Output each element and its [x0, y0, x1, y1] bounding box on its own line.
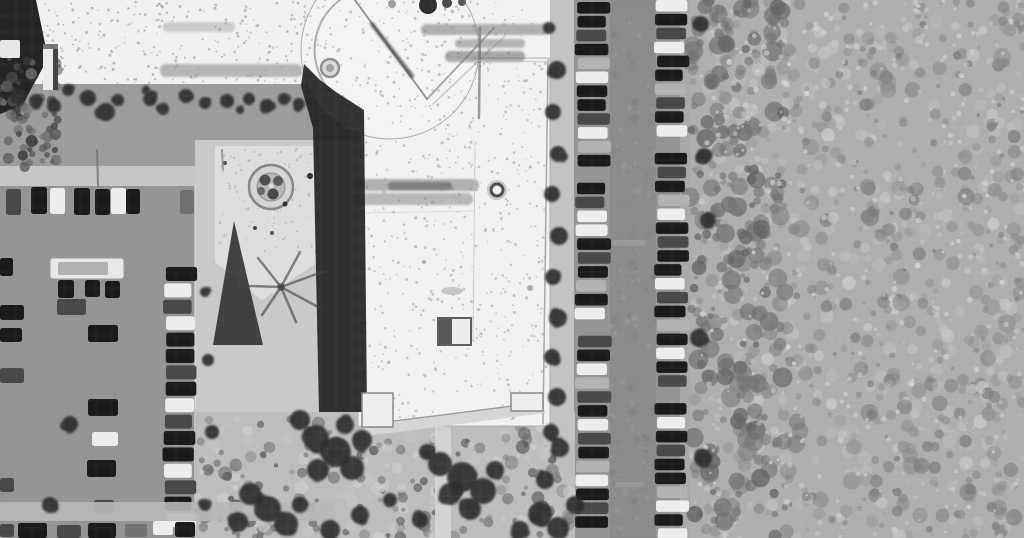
parked-car — [577, 183, 605, 195]
roof-mast-shadow-core — [388, 182, 452, 190]
parked-car — [6, 189, 21, 215]
rotunda-skylight-core — [326, 64, 334, 72]
kiosk-tower-shadow — [53, 46, 58, 90]
parked-car — [578, 447, 609, 459]
aerial-photo — [0, 0, 1024, 538]
entry-canopy-west — [362, 393, 393, 427]
parked-car — [576, 461, 609, 473]
parked-car — [655, 70, 683, 82]
parking-road — [610, 0, 656, 538]
parked-car — [0, 305, 24, 320]
roof-vent — [491, 184, 503, 196]
tree — [550, 227, 568, 245]
parked-car — [575, 197, 604, 209]
white-vehicle-nw — [0, 40, 20, 58]
tree — [544, 186, 560, 202]
fountain-center — [269, 184, 274, 189]
parked-car — [88, 325, 118, 342]
parked-car — [0, 258, 13, 276]
parked-car — [164, 431, 196, 445]
parked-car — [165, 415, 192, 429]
parked-car — [578, 419, 608, 431]
roof-dot-b — [422, 260, 426, 264]
parked-car — [655, 403, 687, 415]
parked-car — [657, 209, 685, 221]
fountain-planter-d — [257, 187, 265, 195]
parked-car — [658, 236, 689, 248]
parked-car — [578, 141, 611, 153]
rv-vehicle-top — [58, 262, 108, 275]
parked-car — [578, 252, 611, 264]
parked-car — [88, 399, 118, 416]
roof-hatch-open — [439, 319, 452, 344]
parked-car — [578, 155, 611, 167]
entry-canopy-east — [511, 393, 543, 411]
parked-car — [578, 58, 610, 70]
canopy-shadow-b — [160, 64, 302, 77]
parked-car — [577, 391, 611, 403]
parked-car — [654, 306, 685, 318]
satellite-image-viewport — [0, 0, 1024, 538]
parked-car — [655, 83, 686, 95]
roof-mast-shadow-2 — [355, 193, 473, 205]
parked-car — [578, 433, 611, 445]
parked-car — [0, 368, 24, 383]
rooftop-unit-c — [388, 0, 396, 8]
parked-car — [0, 524, 14, 537]
parked-car — [655, 181, 685, 193]
parked-car — [166, 316, 195, 330]
tree — [566, 496, 584, 514]
parked-car — [654, 42, 684, 54]
parked-car — [576, 280, 606, 292]
mast-shadow-bar-2 — [455, 39, 525, 48]
parked-car — [575, 308, 605, 320]
parked-car — [163, 300, 192, 314]
parked-car — [657, 56, 689, 68]
fountain-planter-c — [268, 189, 279, 200]
parked-car — [95, 189, 110, 215]
parked-car — [657, 417, 685, 429]
parked-car — [577, 2, 610, 14]
tree — [548, 388, 566, 406]
parked-car — [164, 283, 191, 297]
parked-car — [656, 28, 686, 40]
parked-car — [57, 299, 86, 315]
tree — [459, 498, 481, 520]
tree — [290, 410, 310, 430]
parked-car — [58, 280, 74, 298]
road-mark-a — [612, 240, 646, 246]
parked-car — [655, 153, 687, 165]
parked-car — [163, 447, 194, 461]
parked-car — [164, 464, 192, 478]
parked-car — [31, 187, 47, 214]
parked-car — [578, 336, 612, 348]
mast-shadow-bar-1 — [421, 24, 549, 35]
parked-car — [656, 97, 685, 109]
parked-car — [0, 328, 22, 342]
parked-car — [657, 320, 689, 332]
parked-car — [656, 445, 685, 457]
parked-car — [655, 473, 686, 485]
parked-car — [166, 349, 195, 363]
parked-car — [658, 195, 690, 207]
parked-car — [654, 264, 681, 276]
parked-car — [578, 405, 608, 417]
parked-car — [577, 113, 610, 125]
parked-car — [578, 127, 608, 139]
parked-car — [577, 350, 610, 362]
parked-car — [655, 111, 684, 123]
parked-car — [656, 348, 685, 360]
fountain-planter-b — [273, 176, 283, 186]
parked-car — [166, 333, 194, 347]
parked-car — [655, 514, 683, 526]
plaza-bollard-a — [283, 202, 288, 207]
parked-car — [57, 525, 81, 538]
light-pole-shadow-a — [97, 150, 98, 186]
